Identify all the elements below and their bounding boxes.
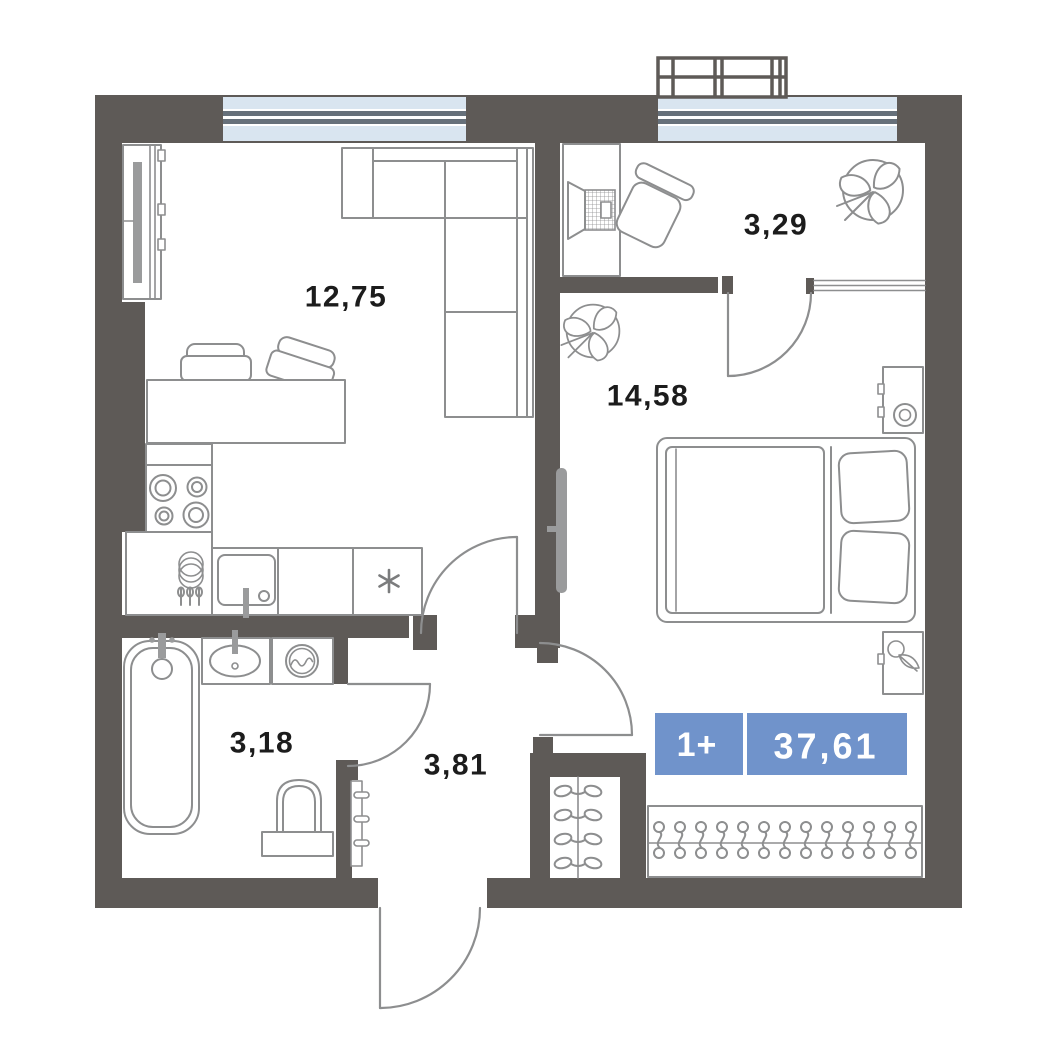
room-area-label-hallway: 3,81 xyxy=(424,749,488,782)
dining-table xyxy=(147,380,345,443)
wall-balcony-bedroom xyxy=(560,277,718,293)
wall-right xyxy=(925,95,962,908)
desk-chair xyxy=(609,161,696,253)
wardrobe-hangers-icon xyxy=(648,806,922,877)
kitchen-door-jamb xyxy=(413,615,437,650)
dining-chair xyxy=(181,344,251,381)
plant-icon xyxy=(560,304,621,362)
room-area-label-bathroom: 3,18 xyxy=(230,727,294,760)
total-area-value: 37,61 xyxy=(773,726,878,767)
room-area-label-balcony: 3,29 xyxy=(744,209,808,242)
room-area-label-living-kitchen: 12,75 xyxy=(305,281,388,314)
wardrobe-handle xyxy=(158,239,165,250)
bathtub-icon xyxy=(124,633,199,834)
rooms-count-label: 1+ xyxy=(677,726,718,764)
wall-left-pier xyxy=(95,302,145,532)
closet-wall-right xyxy=(620,753,646,880)
plant-icon xyxy=(835,159,904,224)
wall-door-jamb xyxy=(537,648,558,663)
laptop-icon xyxy=(568,182,615,239)
kitchen-counter xyxy=(126,444,422,618)
window-balcony xyxy=(658,97,897,141)
desk xyxy=(563,144,620,276)
hall-closet-hangers-icon xyxy=(554,777,603,878)
door-bathroom xyxy=(348,684,430,766)
floor-plan-drawing: 12,75 3,29 14,58 3,18 3,81 1+ 37,61 xyxy=(0,0,1059,1059)
wardrobe-handle xyxy=(158,204,165,215)
pillow xyxy=(838,530,910,603)
washbasin-icon xyxy=(202,630,270,684)
nightstand-lamp xyxy=(878,367,923,433)
window-living xyxy=(223,97,466,141)
balcony-window-jamb xyxy=(806,278,814,294)
washing-machine-icon xyxy=(272,638,333,684)
wall-bathroom-lower xyxy=(336,780,352,880)
wall-bottom-right xyxy=(487,878,962,908)
room-area-label-bedroom: 14,58 xyxy=(607,380,690,413)
area-badge: 1+ 37,61 xyxy=(655,713,907,775)
balcony-door-jamb xyxy=(722,276,733,294)
pillow xyxy=(838,450,910,523)
wall-bathroom-upper xyxy=(332,638,348,684)
wall-bottom-left xyxy=(95,878,378,908)
wall-kitchen-bathroom xyxy=(95,615,409,638)
floor-plan: 12,75 3,29 14,58 3,18 3,81 1+ 37,61 xyxy=(0,0,1059,1059)
toilet-icon xyxy=(262,780,333,856)
bathroom-door-jamb xyxy=(336,760,358,780)
nightstand-plant xyxy=(878,632,923,694)
bed xyxy=(657,438,915,622)
balcony-railing-icon xyxy=(658,58,786,97)
door-balcony xyxy=(728,293,811,376)
towel-hooks-icon xyxy=(351,781,369,866)
wardrobe xyxy=(123,145,165,299)
door-entrance xyxy=(380,908,480,1008)
wardrobe-handle xyxy=(158,150,165,161)
balcony-bedroom-window xyxy=(814,281,925,291)
